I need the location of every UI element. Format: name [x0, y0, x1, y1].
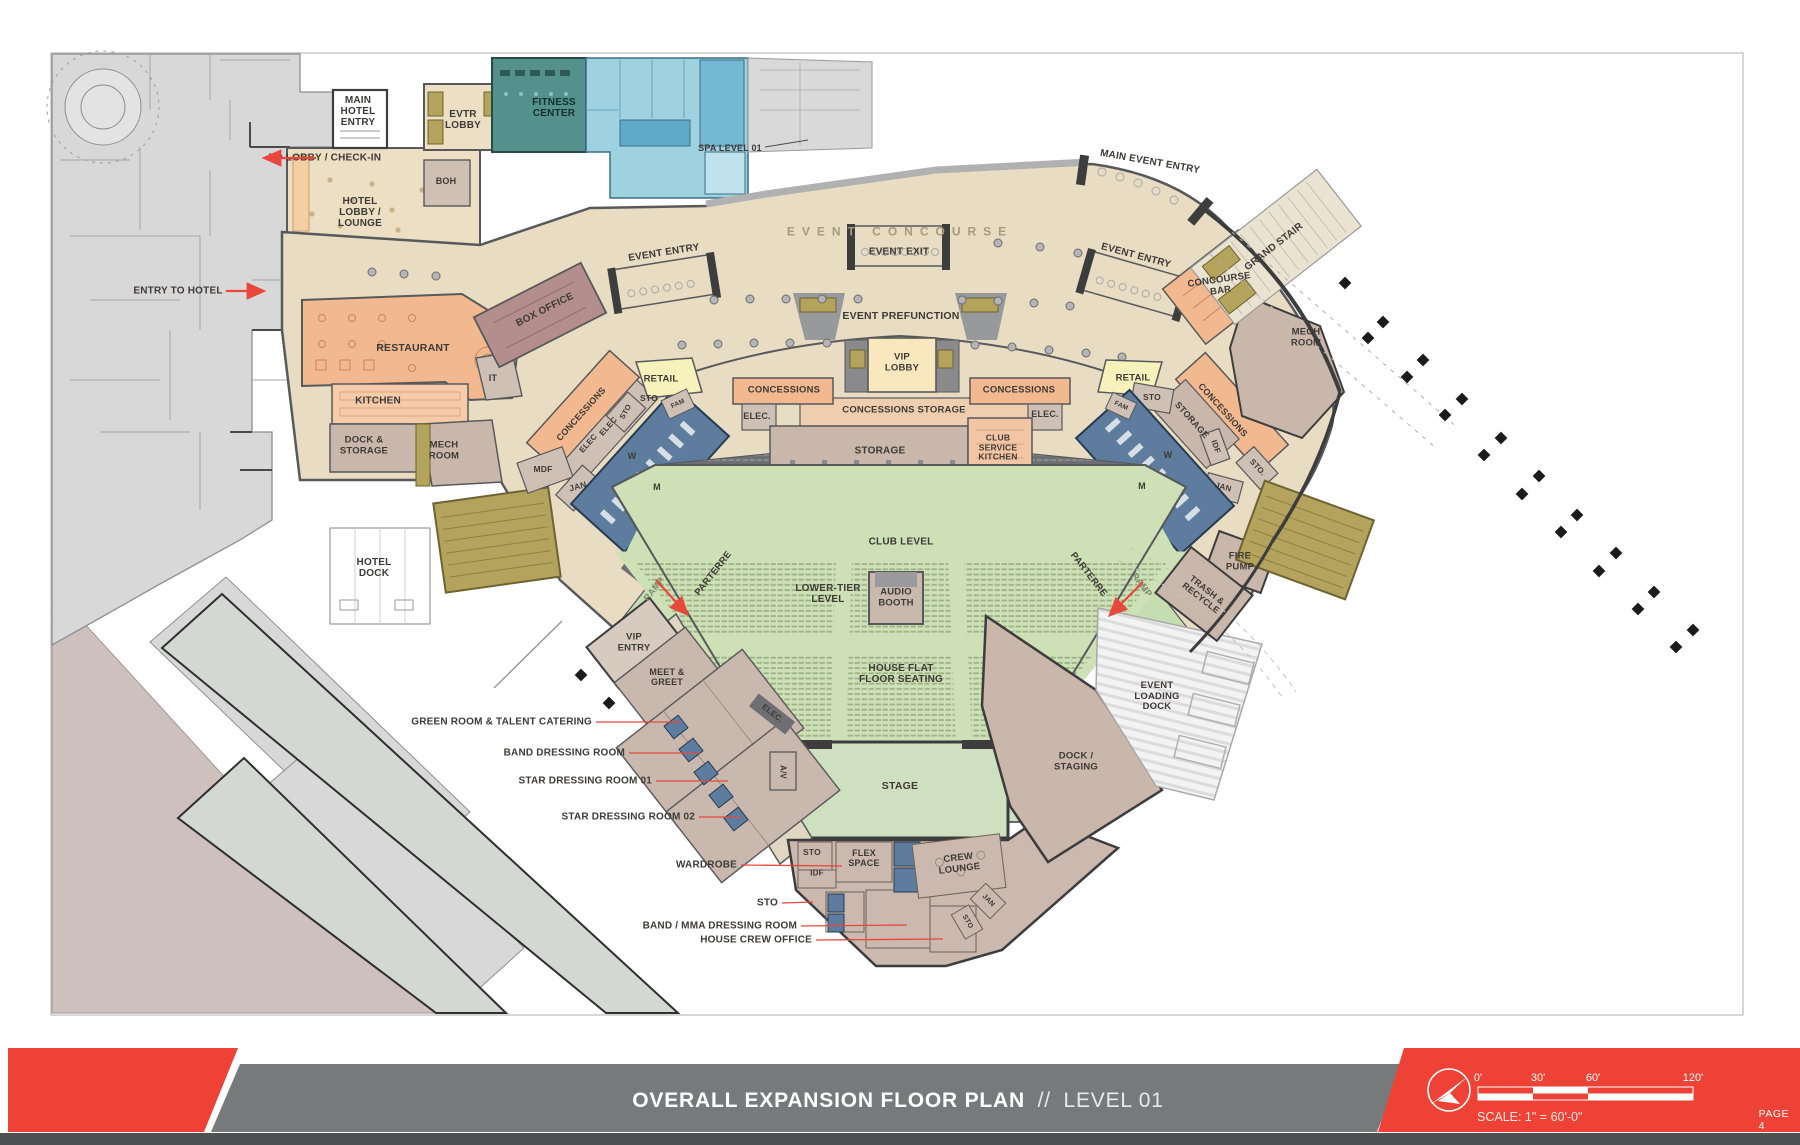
- callout-label: STAR DRESSING ROOM 01: [519, 775, 652, 786]
- room-label: DOCK & STORAGE: [340, 435, 388, 456]
- room-label: EVTR LOBBY: [445, 109, 481, 131]
- room-label: CONCESSIONS: [983, 386, 1055, 397]
- room-label: EVENT PREFUNCTION: [842, 311, 959, 323]
- sheet-title-level: LEVEL 01: [1064, 1089, 1164, 1112]
- room-label: MAIN EVENT ENTRY: [1099, 148, 1201, 177]
- room-label: IDF: [810, 870, 824, 879]
- room-label: ELEC: [598, 416, 619, 438]
- room-label: FIRE PUMP: [1226, 551, 1254, 572]
- room-label: CONCESSIONS: [748, 386, 820, 397]
- room-label: MAIN HOTEL ENTRY: [341, 95, 376, 129]
- callout-label: WARDROBE: [676, 859, 737, 870]
- callout-label: GREEN ROOM & TALENT CATERING: [411, 716, 592, 727]
- room-label: VIP ENTRY: [618, 632, 651, 653]
- room-label: STORAGE: [855, 445, 906, 456]
- scale-tick: 120': [1683, 1072, 1703, 1084]
- room-label: IT: [489, 373, 497, 383]
- room-label: EVENT LOADING DOCK: [1134, 681, 1179, 713]
- room-label: DOCK / STAGING: [1054, 751, 1098, 772]
- room-label: STO: [618, 403, 633, 421]
- room-label: ELEC.: [1031, 409, 1059, 419]
- room-label: ELEC.: [760, 703, 785, 725]
- sheet-title-divider: //: [1032, 1089, 1057, 1112]
- room-label: MDF: [533, 465, 552, 475]
- room-label: KITCHEN: [355, 395, 401, 406]
- room-label: STO: [803, 848, 821, 858]
- sheet-title-main: OVERALL EXPANSION FLOOR PLAN: [632, 1089, 1025, 1112]
- room-label: FAM: [670, 398, 686, 411]
- room-label: SPA LEVEL 01: [698, 143, 762, 153]
- room-label: CONCESSIONS STORAGE: [842, 406, 965, 417]
- room-label: RESTAURANT: [376, 343, 450, 355]
- room-label: MECH ROOM: [429, 440, 459, 461]
- sheet-title: OVERALL EXPANSION FLOOR PLAN // LEVEL 01: [632, 1089, 1163, 1113]
- room-label: PARTERRE: [693, 550, 734, 598]
- scale-tick: 60': [1586, 1072, 1600, 1084]
- room-label: CONCOURSE BAR: [1187, 271, 1253, 301]
- room-label: W: [628, 451, 637, 461]
- room-label: TO LOBBY / CHECK-IN: [269, 152, 381, 163]
- room-label: M: [653, 482, 661, 492]
- room-label: MEET & GREET: [649, 667, 684, 687]
- room-label: ELEC: [578, 433, 599, 455]
- room-label: ENTRY TO HOTEL: [133, 285, 222, 296]
- room-label: STO.: [1247, 458, 1267, 478]
- room-label: VIP LOBBY: [885, 352, 919, 373]
- room-label: HOTEL DOCK: [357, 557, 392, 579]
- plan-sheet: MAIN HOTEL ENTRYTO LOBBY / CHECK-INENTRY…: [0, 0, 1800, 1145]
- scale-label: SCALE: 1" = 60'-0": [1477, 1110, 1582, 1124]
- room-label: FLEX SPACE: [848, 848, 879, 868]
- room-label: EVENT ENTRY: [628, 242, 701, 264]
- room-label: LOWER-TIER LEVEL: [795, 583, 860, 605]
- room-label: STO: [960, 914, 974, 931]
- room-label: EVENT CONCOURSE: [787, 225, 1013, 238]
- room-label: STO: [640, 394, 658, 404]
- room-label: STO: [1143, 393, 1161, 403]
- callout-label: BAND DRESSING ROOM: [504, 747, 625, 758]
- room-label: RAMP: [1130, 571, 1155, 599]
- room-label: FITNESS CENTER: [532, 97, 576, 119]
- room-label: BOH: [436, 176, 457, 186]
- callout-label: STAR DRESSING ROOM 02: [562, 811, 695, 822]
- room-label: W: [1164, 450, 1173, 460]
- room-label: M: [1138, 481, 1146, 491]
- room-label: RETAIL: [644, 375, 679, 386]
- page-number: PAGE 4: [1759, 1108, 1789, 1132]
- room-label: PARTERRE: [1067, 551, 1108, 599]
- label-layer: MAIN HOTEL ENTRYTO LOBBY / CHECK-INENTRY…: [0, 0, 1800, 1145]
- room-label: JAN: [980, 893, 996, 909]
- room-label: A/V: [778, 765, 787, 779]
- room-label: RAMP: [642, 575, 667, 603]
- room-label: RETAIL: [1116, 374, 1151, 385]
- room-label: CLUB SERVICE KITCHEN: [978, 434, 1017, 463]
- room-label: STORAGE: [1173, 400, 1211, 441]
- room-label: TRASH & RECYCLE: [1180, 572, 1227, 615]
- room-label: HOUSE FLAT FLOOR SEATING: [859, 663, 943, 685]
- callout-label: STO: [757, 897, 778, 908]
- room-label: CREW LOUNGE: [937, 851, 981, 877]
- room-label: MECH ROOM: [1291, 327, 1321, 348]
- callout-label: HOUSE CREW OFFICE: [700, 934, 812, 945]
- room-label: EVENT ENTRY: [1100, 241, 1172, 270]
- room-label: STAGE: [882, 781, 918, 793]
- room-label: HOTEL LOBBY / LOUNGE: [338, 196, 382, 230]
- room-label: BOX OFFICE: [514, 291, 575, 330]
- room-label: AUDIO BOOTH: [878, 587, 913, 608]
- room-label: FAM: [1113, 400, 1129, 413]
- scale-tick: 30': [1531, 1072, 1545, 1084]
- room-label: JAN: [1214, 482, 1232, 495]
- room-label: EVENT EXIT: [869, 246, 929, 257]
- callout-label: BAND / MMA DRESSING ROOM: [643, 920, 797, 931]
- scale-tick: 0': [1474, 1072, 1482, 1084]
- room-label: GRAND STAIR: [1243, 221, 1306, 273]
- room-label: CLUB LEVEL: [869, 536, 934, 547]
- room-label: JAN: [568, 480, 587, 494]
- room-label: ELEC.: [743, 411, 771, 421]
- room-label: IDF: [1208, 439, 1221, 455]
